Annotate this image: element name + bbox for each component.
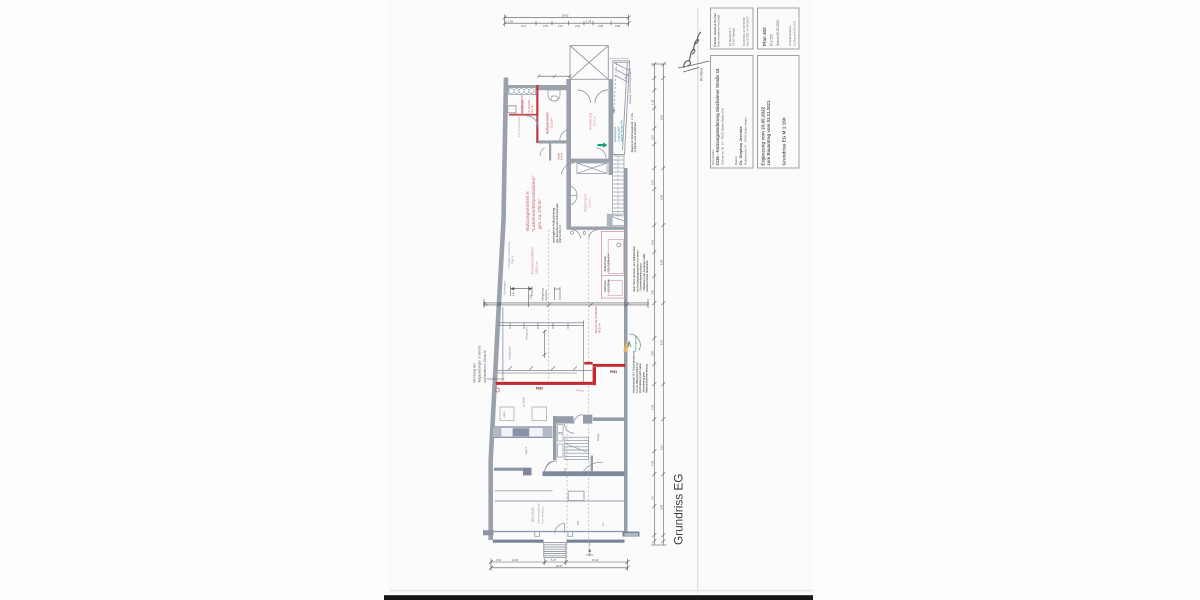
svg-text:Nutzungseinheit II: Nutzungseinheit II	[525, 191, 530, 231]
svg-text:3.10: 3.10	[575, 24, 581, 28]
svg-text:1.38: 1.38	[651, 99, 655, 105]
svg-text:Plan 402: Plan 402	[762, 27, 767, 46]
svg-text:Produktionsfläche: Produktionsfläche	[531, 247, 535, 274]
svg-text:ca. 35 m²: ca. 35 m²	[523, 397, 526, 407]
svg-text:15.43: 15.43	[592, 558, 599, 562]
svg-text:Hängebahn: Hängebahn	[508, 346, 512, 360]
svg-text:3.58: 3.58	[615, 24, 621, 28]
svg-text:4.26: 4.26	[651, 460, 655, 466]
svg-text:2.44: 2.44	[513, 291, 516, 296]
svg-text:Moltkestraße 14 · 76530 Bade: Moltkestraße 14 · 76530 Baden-Baden	[744, 116, 748, 165]
svg-text:Umkleide: Umkleide	[521, 99, 525, 113]
svg-text:Grundriss EG: Grundriss EG	[672, 474, 686, 545]
svg-text:4.0 m²: 4.0 m²	[560, 153, 564, 160]
svg-text:ges. ca. 278 m²: ges. ca. 278 m²	[537, 199, 542, 229]
svg-text:PM2a: PM2a	[576, 389, 584, 393]
svg-text:Datum 23.05.2022: Datum 23.05.2022	[776, 20, 780, 46]
svg-text:Architekt: Architekt	[700, 68, 704, 81]
svg-text:3.65: 3.65	[598, 24, 604, 28]
svg-text:Arbeitsstättenverordnung: Arbeitsstättenverordnung	[645, 363, 649, 393]
svg-text:68.8 m²: 68.8 m²	[598, 323, 602, 333]
svg-text:TW0-8: TW0-8	[511, 255, 515, 264]
svg-text:Freie Architekten PartGmbB: Freie Architekten PartGmbB	[717, 14, 721, 47]
svg-text:2.10: 2.10	[651, 134, 655, 140]
svg-text:WM: WM	[577, 521, 580, 525]
svg-text:Treppe: Treppe	[597, 433, 600, 441]
svg-text:6.1 m²: 6.1 m²	[530, 105, 534, 113]
svg-text:1.44: 1.44	[508, 20, 514, 24]
svg-text:Lager: Lager	[503, 412, 506, 418]
svg-text:Tränkle, Stadel & Partner: Tränkle, Stadel & Partner	[713, 12, 717, 47]
svg-text:3.66: 3.66	[651, 350, 655, 356]
svg-text:Kühlhaus: Kühlhaus	[603, 280, 607, 292]
svg-text:Eingang Lebensmittelproduktion: Eingang Lebensmittelproduktion	[629, 68, 632, 104]
svg-text:M 1:150: M 1:150	[770, 34, 774, 46]
svg-text:5.47: 5.47	[551, 558, 557, 562]
svg-text:Hängebahn: Hängebahn	[525, 326, 529, 340]
svg-text:ASR A1.5/1.2,3: ASR A1.5/1.2,3	[558, 225, 562, 243]
svg-text:zum Bauantrag vom 03.11.2021: zum Bauantrag vom 03.11.2021	[766, 100, 771, 165]
svg-text:maschine: maschine	[544, 289, 548, 301]
svg-text:8.15: 8.15	[660, 444, 664, 450]
svg-text:26.8 m²: 26.8 m²	[593, 116, 597, 126]
svg-text:2.0/1.5/2.4 h: 2.0/1.5/2.4 h	[609, 279, 611, 292]
svg-text:TR: TR	[602, 523, 605, 526]
svg-text:m. Dusche: m. Dusche	[527, 99, 531, 112]
svg-text:Ergänzung vom 23.05.2022: Ergänzung vom 23.05.2022	[761, 106, 766, 165]
svg-text:3.14: 3.14	[651, 179, 655, 185]
svg-text:Mündung der: Mündung der	[473, 362, 477, 382]
svg-text:01-Plan-pdf-402-2022: 01-Plan-pdf-402-2022	[793, 20, 797, 46]
svg-text:Rettungsweg: Rettungsweg	[634, 336, 638, 352]
svg-text:PM3: PM3	[610, 370, 617, 374]
svg-text:Tiefkühlhaus: Tiefkühlhaus	[603, 255, 607, 271]
svg-text:"Lebensmittelproduktion": "Lebensmittelproduktion"	[531, 175, 536, 232]
svg-text:mobile Rampe 6%: mobile Rampe 6%	[620, 119, 624, 142]
svg-text:Fahrradabstellpl.: Fahrradabstellpl.	[517, 116, 521, 137]
svg-text:28.87: 28.87	[556, 564, 563, 568]
svg-text:76437 Rastatt: 76437 Rastatt	[732, 28, 736, 46]
svg-text:BESTAND: BESTAND	[531, 506, 535, 522]
svg-text:Dr. Stephan Jeremia: Dr. Stephan Jeremia	[738, 126, 743, 165]
svg-text:Fax 07221 34 49 58 07: Fax 07221 34 49 58 07	[746, 16, 750, 46]
svg-text:4.3: 4.3	[651, 496, 655, 500]
svg-text:21.8 m²: 21.8 m²	[588, 198, 592, 208]
svg-text:13.5 m²: 13.5 m²	[550, 118, 554, 128]
svg-text:3.0/1.5/2.4 h=2.4: 3.0/1.5/2.4 h=2.4	[609, 254, 611, 272]
svg-text:0.51: 0.51	[496, 558, 502, 562]
svg-text:nachleuchtende Materialien: nachleuchtende Materialien	[645, 260, 649, 292]
svg-text:Grundriss EG M 1:150: Grundriss EG M 1:150	[782, 117, 787, 165]
svg-text:3.95: 3.95	[651, 289, 655, 295]
svg-text:Stockwagen: Stockwagen	[503, 280, 507, 295]
svg-text:1.50: 1.50	[530, 295, 533, 300]
svg-text:4.05: 4.05	[651, 239, 655, 245]
svg-text:3.35: 3.35	[543, 24, 549, 28]
svg-text:Flur: Flur	[564, 468, 567, 472]
svg-text:2116 - Nutzungsänderung Sinzhe: 2116 - Nutzungsänderung Sinzheimer Straß…	[715, 68, 720, 166]
svg-text:6.20: 6.20	[660, 339, 664, 345]
svg-text:1.78: 1.78	[586, 20, 592, 24]
svg-text:28.82: 28.82	[562, 14, 569, 18]
svg-text:Sinzheimer Str. 14 · 76532 B: Sinzheimer Str. 14 · 76532 Baden-Baden-O…	[721, 107, 725, 165]
svg-text:3.21: 3.21	[521, 24, 527, 28]
svg-text:4.38: 4.38	[660, 194, 664, 200]
svg-text:8.05: 8.05	[660, 114, 664, 120]
svg-text:6.06: 6.06	[660, 259, 664, 265]
svg-text:161.0 m²: 161.0 m²	[535, 261, 539, 274]
svg-text:2.97: 2.97	[558, 24, 564, 28]
svg-text:Technikräume: Technikräume	[541, 506, 545, 524]
svg-text:Abgasleitungen in bereits: Abgasleitungen in bereits	[478, 345, 482, 382]
svg-text:im Hinter- und Vorderhaus: im Hinter- und Vorderhaus	[633, 121, 637, 152]
svg-text:Anzahl Dateien: Anzahl Dateien	[788, 25, 792, 46]
svg-text:12.97: 12.97	[512, 558, 519, 562]
svg-text:5.08: 5.08	[660, 504, 664, 510]
svg-text:vorhandenen Schacht: vorhandenen Schacht	[483, 350, 487, 382]
svg-text:Lager 2: Lager 2	[525, 446, 528, 455]
svg-text:PM2: PM2	[536, 387, 543, 391]
svg-text:5.05: 5.05	[651, 404, 655, 410]
